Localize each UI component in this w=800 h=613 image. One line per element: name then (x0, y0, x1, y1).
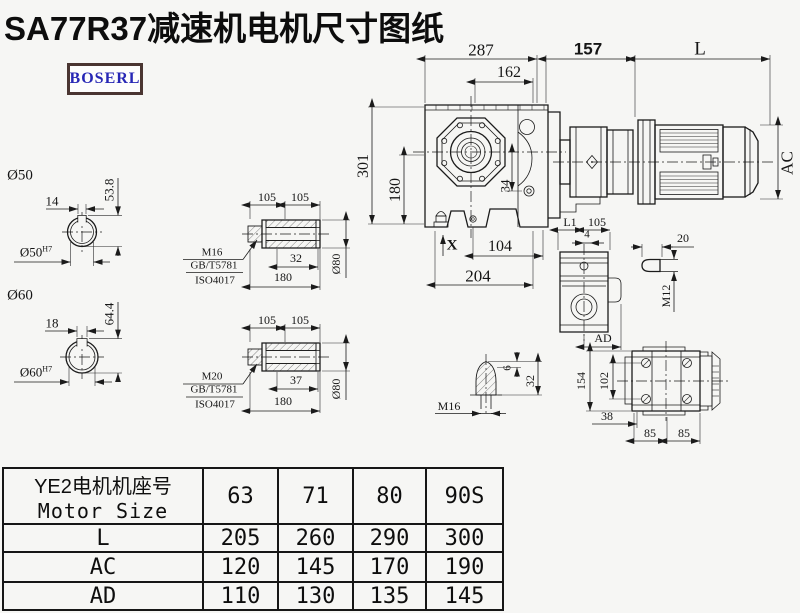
table-cell: 145 (278, 552, 353, 582)
sleeve-bottom-std2-label: ISO4017 (195, 400, 235, 411)
sleeve-bottom-bolt-label: M20 (202, 372, 223, 383)
main-assembly-view (368, 55, 783, 289)
sleeve-top-105a-label: 105 (258, 191, 276, 203)
sideview-AD-label: AD (594, 332, 611, 344)
dim-301-label: 301 (356, 154, 372, 178)
shaft50-bore-label: Ø50H7 (20, 245, 52, 258)
plug-M16-label: M16 (438, 400, 461, 412)
table-cell: 190 (426, 552, 503, 582)
plug-32-label: 32 (524, 375, 536, 387)
shaft50-bore-value: Ø50 (20, 245, 42, 260)
shaft50-title-label: Ø50 (7, 169, 33, 184)
table-header-en: Motor Size (4, 499, 202, 523)
rear-102-label: 102 (598, 372, 610, 390)
table-row-AD: AD 110 130 135 145 (3, 582, 503, 610)
table-header-cn: YE2电机机座号 (4, 470, 202, 499)
sleeve-top-dia-label: Ø80 (330, 254, 342, 275)
plug-6-label: 6 (503, 365, 514, 371)
sideview-L1-label: L1 (563, 216, 576, 228)
dim-287-label: 287 (468, 42, 494, 59)
table-cell: 130 (278, 582, 353, 610)
shaft60-keyheight-label: 64.4 (103, 303, 116, 326)
sideview-105-label: 105 (588, 216, 606, 228)
table-row-AC: AC 120 145 170 190 (3, 552, 503, 582)
table-cell: 110 (203, 582, 278, 610)
table-row-L: L 205 260 290 300 (3, 524, 503, 552)
shaft60-keywidth-label: 18 (46, 317, 59, 330)
rear-85a-label: 85 (644, 427, 656, 439)
row-label-L: L (3, 524, 203, 552)
sleeve-bottom-105b-label: 105 (291, 314, 309, 326)
table-header-cell: YE2电机机座号 Motor Size (3, 468, 203, 524)
sleeve-bottom-dia-label: Ø80 (330, 379, 342, 400)
dim-X-label: X (447, 239, 458, 254)
sleeve-top-105b-label: 105 (291, 191, 309, 203)
sideview-4-label: 4 (584, 230, 590, 241)
dim-180-label: 180 (388, 178, 404, 202)
dim-162-label: 162 (497, 65, 521, 81)
dim-34-label: 34 (499, 180, 512, 193)
table-col-90S: 90S (426, 468, 503, 524)
table-cell: 145 (426, 582, 503, 610)
rear-38-label: 38 (601, 410, 613, 422)
sleeve-bottom-std1-label: GB/T5781 (190, 385, 237, 396)
dim-204-label: 204 (465, 268, 491, 285)
sleeve-top-std1-label: GB/T5781 (190, 261, 237, 272)
dim-AC-label: AC (779, 151, 796, 175)
shaft50-keyheight-label: 53.8 (103, 179, 116, 202)
shaft60-bore-label: Ø60H7 (20, 365, 52, 378)
key-20-label: 20 (677, 232, 689, 244)
sleeve-bottom-105a-label: 105 (258, 314, 276, 326)
table-cell: 205 (203, 524, 278, 552)
rear-view (586, 341, 729, 444)
rear-154-label: 154 (575, 372, 587, 390)
table-col-71: 71 (278, 468, 353, 524)
shaft60-bore-value: Ø60 (20, 365, 42, 380)
row-label-AD: AD (3, 582, 203, 610)
shaft60-tolerance: H7 (42, 364, 52, 373)
table-header-row: YE2电机机座号 Motor Size 63 71 80 90S (3, 468, 503, 524)
table-cell: 135 (353, 582, 426, 610)
table-cell: 260 (278, 524, 353, 552)
table-cell: 120 (203, 552, 278, 582)
sleeve-top-32-label: 32 (290, 252, 302, 264)
table-col-80: 80 (353, 468, 426, 524)
sleeve-top-bolt-label: M16 (202, 248, 223, 259)
dim-157-label: 157 (574, 41, 602, 58)
table-col-63: 63 (203, 468, 278, 524)
rear-85b-label: 85 (678, 427, 690, 439)
dim-L-label: L (694, 40, 706, 59)
shaft50-keywidth-label: 14 (46, 195, 59, 208)
sleeve-top-std2-label: ISO4017 (195, 276, 235, 287)
table-cell: 290 (353, 524, 426, 552)
row-label-AC: AC (3, 552, 203, 582)
drawing-sheet: SA77R37减速机电机尺寸图纸 BOSERL (0, 0, 800, 613)
table-cell: 300 (426, 524, 503, 552)
motor-size-table: YE2电机机座号 Motor Size 63 71 80 90S L 205 2… (2, 467, 504, 611)
sleeve-top-180-label: 180 (274, 271, 292, 283)
shaft50-tolerance: H7 (42, 244, 52, 253)
dim-104-label: 104 (488, 239, 512, 255)
key-M12-label: M12 (660, 285, 672, 308)
table-cell: 170 (353, 552, 426, 582)
sleeve-bottom-37-label: 37 (290, 374, 302, 386)
sleeve-bottom-180-label: 180 (274, 395, 292, 407)
shaft60-title-label: Ø60 (7, 289, 33, 304)
